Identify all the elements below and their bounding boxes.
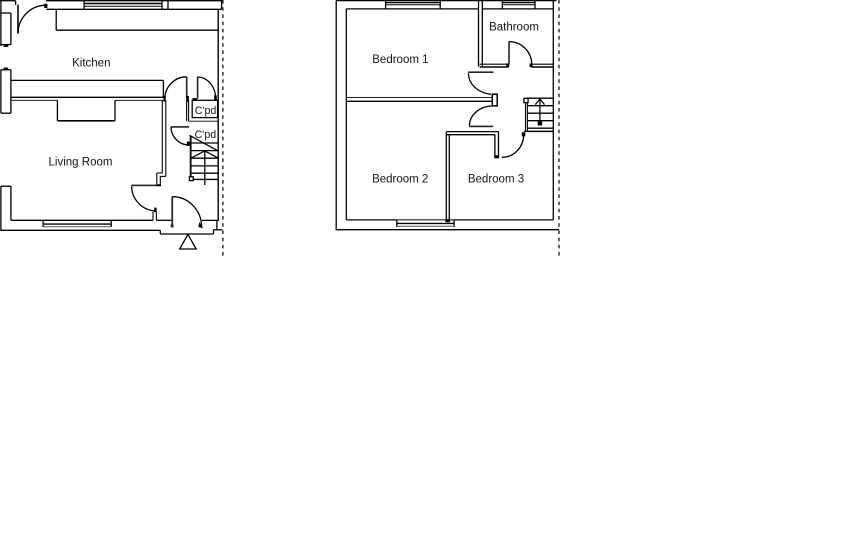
svg-text:Bathroom: Bathroom bbox=[489, 22, 539, 34]
svg-text:Bedroom 3: Bedroom 3 bbox=[468, 173, 524, 185]
svg-text:C'pd: C'pd bbox=[195, 105, 217, 117]
svg-text:Living Room: Living Room bbox=[49, 156, 113, 168]
svg-text:Bedroom 2: Bedroom 2 bbox=[372, 173, 428, 185]
svg-text:Kitchen: Kitchen bbox=[72, 58, 110, 70]
svg-text:Bedroom 1: Bedroom 1 bbox=[372, 54, 428, 66]
svg-text:C'pd: C'pd bbox=[195, 129, 217, 141]
